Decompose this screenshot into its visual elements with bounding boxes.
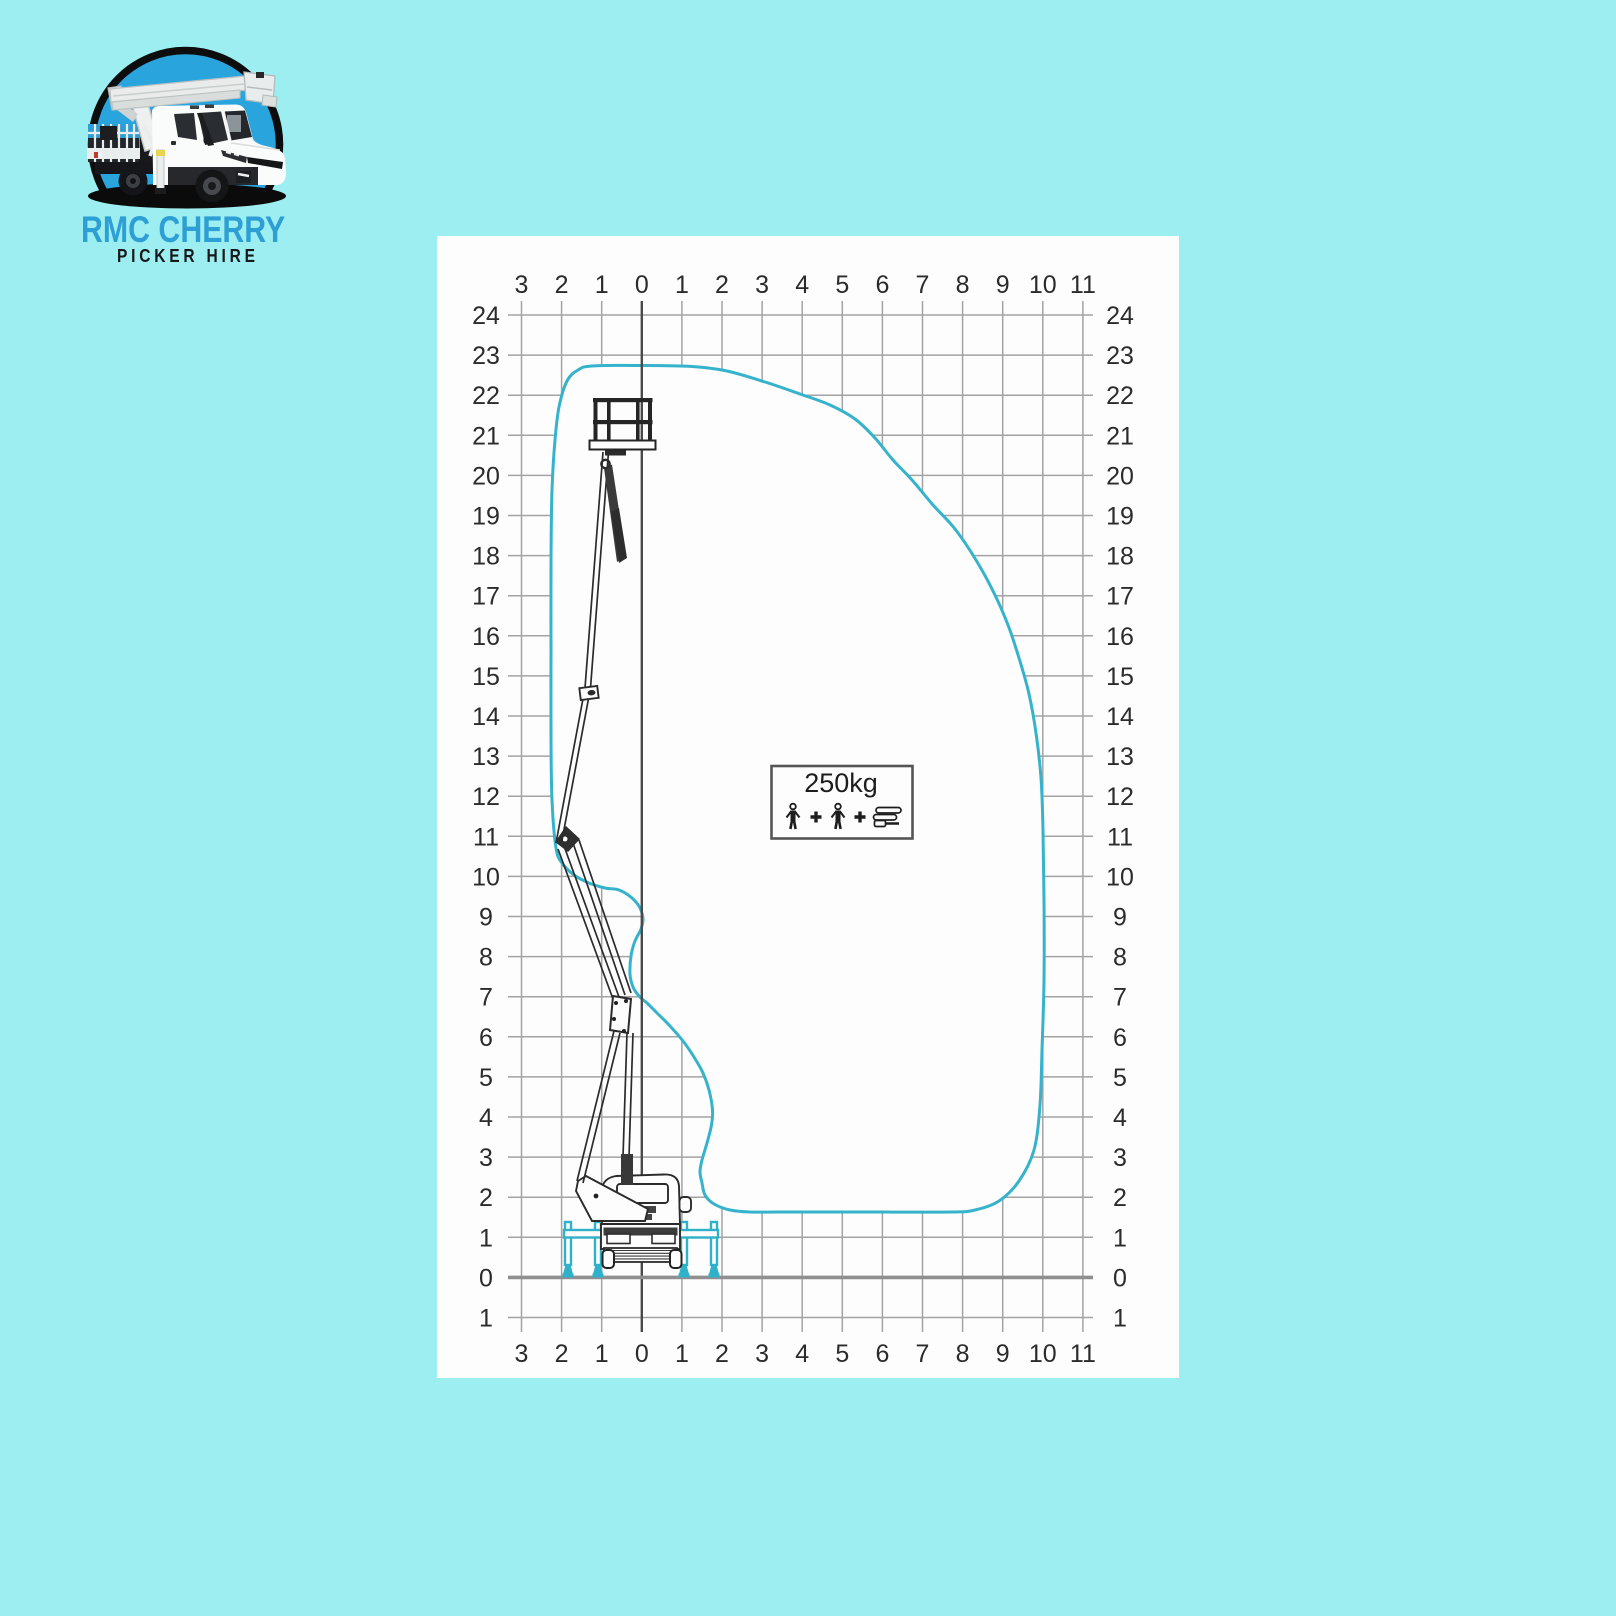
svg-text:8: 8 — [479, 944, 493, 972]
svg-text:18: 18 — [472, 543, 500, 571]
svg-text:1: 1 — [595, 1340, 609, 1368]
svg-text:10: 10 — [472, 863, 500, 891]
svg-text:12: 12 — [472, 783, 500, 811]
svg-text:18: 18 — [1106, 543, 1134, 571]
svg-text:12: 12 — [1106, 783, 1134, 811]
svg-text:7: 7 — [916, 271, 930, 299]
svg-text:1: 1 — [1113, 1224, 1127, 1252]
svg-text:0: 0 — [479, 1264, 493, 1292]
svg-text:4: 4 — [1113, 1104, 1127, 1132]
svg-text:6: 6 — [875, 271, 889, 299]
svg-text:8: 8 — [1113, 944, 1127, 972]
svg-text:250kg: 250kg — [804, 768, 878, 798]
svg-text:3: 3 — [515, 271, 529, 299]
svg-text:15: 15 — [472, 663, 500, 691]
svg-text:23: 23 — [1106, 342, 1134, 370]
svg-text:2: 2 — [555, 271, 569, 299]
svg-text:1: 1 — [479, 1305, 493, 1333]
svg-text:7: 7 — [1113, 984, 1127, 1012]
svg-text:11: 11 — [1107, 823, 1133, 851]
svg-text:21: 21 — [472, 422, 500, 450]
svg-text:3: 3 — [755, 1340, 769, 1368]
svg-text:9: 9 — [479, 904, 493, 932]
svg-text:4: 4 — [479, 1104, 493, 1132]
svg-text:22: 22 — [1106, 382, 1134, 410]
svg-text:11: 11 — [473, 823, 499, 851]
svg-text:1: 1 — [675, 271, 689, 299]
svg-text:1: 1 — [675, 1340, 689, 1368]
svg-text:6: 6 — [875, 1340, 889, 1368]
svg-text:17: 17 — [472, 583, 500, 611]
svg-text:10: 10 — [1029, 1340, 1057, 1368]
svg-text:8: 8 — [956, 271, 970, 299]
svg-text:0: 0 — [635, 271, 649, 299]
svg-text:24: 24 — [472, 302, 500, 330]
svg-text:20: 20 — [1106, 462, 1134, 490]
svg-text:9: 9 — [1113, 904, 1127, 932]
svg-text:6: 6 — [1113, 1024, 1127, 1052]
svg-text:13: 13 — [472, 743, 500, 771]
svg-text:23: 23 — [472, 342, 500, 370]
svg-text:22: 22 — [472, 382, 500, 410]
svg-text:6: 6 — [479, 1024, 493, 1052]
svg-text:3: 3 — [515, 1340, 529, 1368]
svg-text:16: 16 — [1106, 623, 1134, 651]
svg-text:5: 5 — [835, 271, 849, 299]
svg-text:2: 2 — [555, 1340, 569, 1368]
svg-text:2: 2 — [1113, 1184, 1127, 1212]
svg-text:4: 4 — [795, 271, 809, 299]
svg-text:10: 10 — [1106, 863, 1134, 891]
svg-text:8: 8 — [956, 1340, 970, 1368]
svg-text:1: 1 — [595, 271, 609, 299]
svg-text:2: 2 — [715, 271, 729, 299]
svg-text:14: 14 — [472, 703, 500, 731]
svg-text:2: 2 — [479, 1184, 493, 1212]
svg-text:11: 11 — [1070, 1340, 1096, 1368]
svg-text:4: 4 — [795, 1340, 809, 1368]
svg-text:3: 3 — [1113, 1144, 1127, 1172]
svg-text:14: 14 — [1106, 703, 1134, 731]
svg-text:16: 16 — [472, 623, 500, 651]
svg-text:2: 2 — [715, 1340, 729, 1368]
svg-text:19: 19 — [472, 503, 500, 531]
svg-text:3: 3 — [479, 1144, 493, 1172]
svg-text:3: 3 — [755, 271, 769, 299]
svg-text:0: 0 — [1113, 1264, 1127, 1292]
svg-text:5: 5 — [1113, 1064, 1127, 1092]
svg-text:5: 5 — [479, 1064, 493, 1092]
svg-text:0: 0 — [635, 1340, 649, 1368]
svg-text:24: 24 — [1106, 302, 1134, 330]
svg-text:9: 9 — [996, 271, 1010, 299]
svg-text:20: 20 — [472, 462, 500, 490]
svg-text:7: 7 — [479, 984, 493, 1012]
svg-text:7: 7 — [916, 1340, 930, 1368]
svg-text:19: 19 — [1106, 503, 1134, 531]
svg-text:10: 10 — [1029, 271, 1057, 299]
svg-text:9: 9 — [996, 1340, 1010, 1368]
svg-text:1: 1 — [479, 1224, 493, 1252]
svg-text:11: 11 — [1070, 271, 1096, 299]
svg-text:17: 17 — [1106, 583, 1134, 611]
svg-text:15: 15 — [1106, 663, 1134, 691]
svg-text:21: 21 — [1106, 422, 1134, 450]
svg-text:13: 13 — [1106, 743, 1134, 771]
svg-text:5: 5 — [835, 1340, 849, 1368]
svg-text:1: 1 — [1113, 1305, 1127, 1333]
